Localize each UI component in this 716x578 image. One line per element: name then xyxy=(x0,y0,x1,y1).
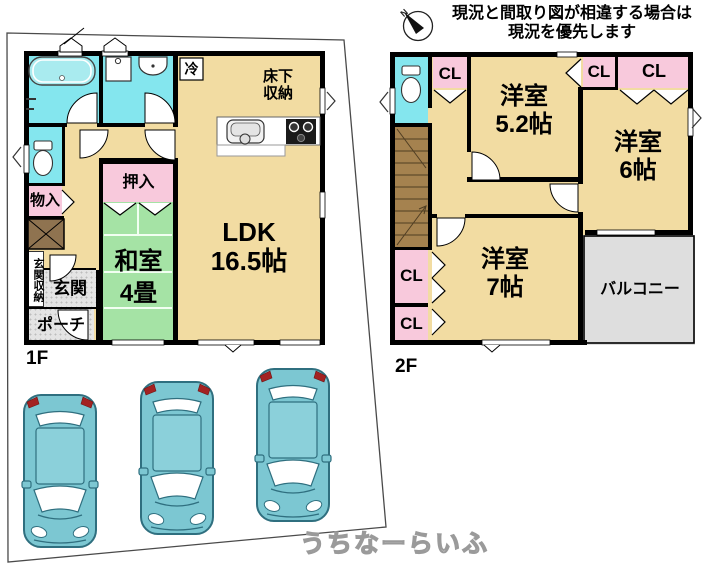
room-label-yukashita-2: 収納 xyxy=(252,86,304,102)
stairs1-icon xyxy=(28,219,64,249)
closet-label-b: CL xyxy=(583,63,615,81)
room-label-yukashita-1: 床下 xyxy=(252,69,304,85)
car-2 xyxy=(139,382,215,534)
room-label-yoshitsu7-name: 洋室 xyxy=(440,247,570,273)
toilet2-icon xyxy=(402,66,421,103)
room-label-yoshitsu7-size: 7帖 xyxy=(440,275,570,301)
watermark-text: うちなーらいふ xyxy=(300,530,489,558)
room-label-genkan-shuno: 玄関収納 xyxy=(28,253,43,307)
room-label-ldk-size: 16.5帖 xyxy=(179,247,319,275)
stairs2-steps xyxy=(395,129,428,245)
floor-plan-canvas: N うちなーらいふ xyxy=(0,0,716,578)
room-label-yoshitsu52-size: 5.2帖 xyxy=(470,112,578,138)
closet-label-d: CL xyxy=(395,267,428,285)
parking-cars xyxy=(22,369,331,547)
room-label-yoshitsu6-name: 洋室 xyxy=(590,130,686,156)
floor2-label: 2F xyxy=(395,357,435,378)
toilet1-icon xyxy=(34,141,53,176)
room-label-genkan: 玄関 xyxy=(44,280,96,298)
washbasin-icon xyxy=(139,57,167,75)
closet-label-e: CL xyxy=(395,315,428,333)
floor1-label: 1F xyxy=(26,349,66,370)
disclaimer-line2: 現況を優先します xyxy=(428,24,716,41)
room-label-ldk-name: LDK xyxy=(179,218,319,246)
stove-icon xyxy=(286,119,316,144)
roof-vent-icons xyxy=(60,28,126,52)
car-3 xyxy=(255,369,331,521)
room-label-yoshitsu6-size: 6帖 xyxy=(590,158,686,184)
washing-machine-icon xyxy=(106,57,131,81)
room-label-washitsu-size: 4畳 xyxy=(104,281,173,307)
room-label-fridge: 冷 xyxy=(180,62,203,77)
car-1 xyxy=(22,395,98,547)
room-label-yoshitsu52-name: 洋室 xyxy=(470,84,578,110)
room-label-balcony: バルコニー xyxy=(585,281,695,298)
room-label-oshiire: 押入 xyxy=(104,174,173,191)
room-label-porch: ポーチ xyxy=(30,317,92,334)
vent-marks xyxy=(225,345,500,352)
room-label-monoire: 物入 xyxy=(26,193,64,209)
room-label-washitsu-name: 和室 xyxy=(104,249,173,275)
closet-label-c: CL xyxy=(630,62,678,81)
disclaimer-line1: 現況と間取り図が相違する場合は xyxy=(428,5,716,22)
closet-label-a: CL xyxy=(433,65,467,83)
